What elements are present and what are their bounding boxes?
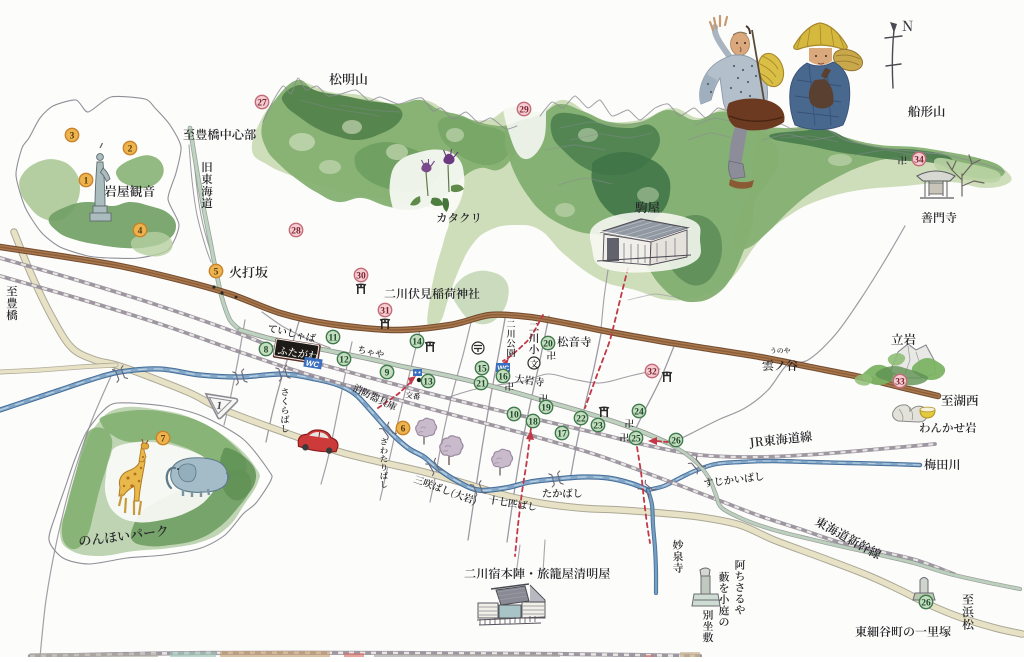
svg-text:11: 11 [329,333,338,343]
svg-text:8: 8 [264,345,269,355]
svg-text:4: 4 [138,226,143,236]
svg-text:24: 24 [634,407,644,417]
svg-text:23: 23 [593,421,603,431]
svg-text:22: 22 [576,414,586,424]
svg-text:28: 28 [291,226,301,236]
svg-text:5: 5 [214,267,219,277]
svg-text:7: 7 [161,434,166,444]
svg-text:9: 9 [385,368,390,378]
svg-text:32: 32 [647,367,657,377]
svg-text:27: 27 [257,98,267,108]
svg-text:18: 18 [528,417,538,427]
svg-text:19: 19 [541,403,551,413]
svg-text:1: 1 [84,176,89,186]
svg-text:33: 33 [895,377,905,387]
svg-text:12: 12 [339,355,349,365]
svg-text:3: 3 [70,131,75,141]
svg-text:6: 6 [401,424,406,434]
svg-text:26: 26 [671,436,681,446]
svg-text:26: 26 [921,598,931,608]
svg-text:25: 25 [631,434,641,444]
svg-text:14: 14 [412,337,422,347]
svg-text:16: 16 [498,372,508,382]
svg-text:10: 10 [509,410,519,420]
svg-text:21: 21 [476,379,486,389]
svg-text:13: 13 [423,377,433,387]
svg-text:31: 31 [380,306,390,316]
svg-text:30: 30 [356,271,366,281]
svg-text:20: 20 [543,339,553,349]
svg-text:2: 2 [128,144,133,154]
svg-text:34: 34 [914,155,924,165]
svg-text:29: 29 [519,105,529,115]
svg-text:15: 15 [477,364,487,374]
svg-text:17: 17 [557,429,567,439]
